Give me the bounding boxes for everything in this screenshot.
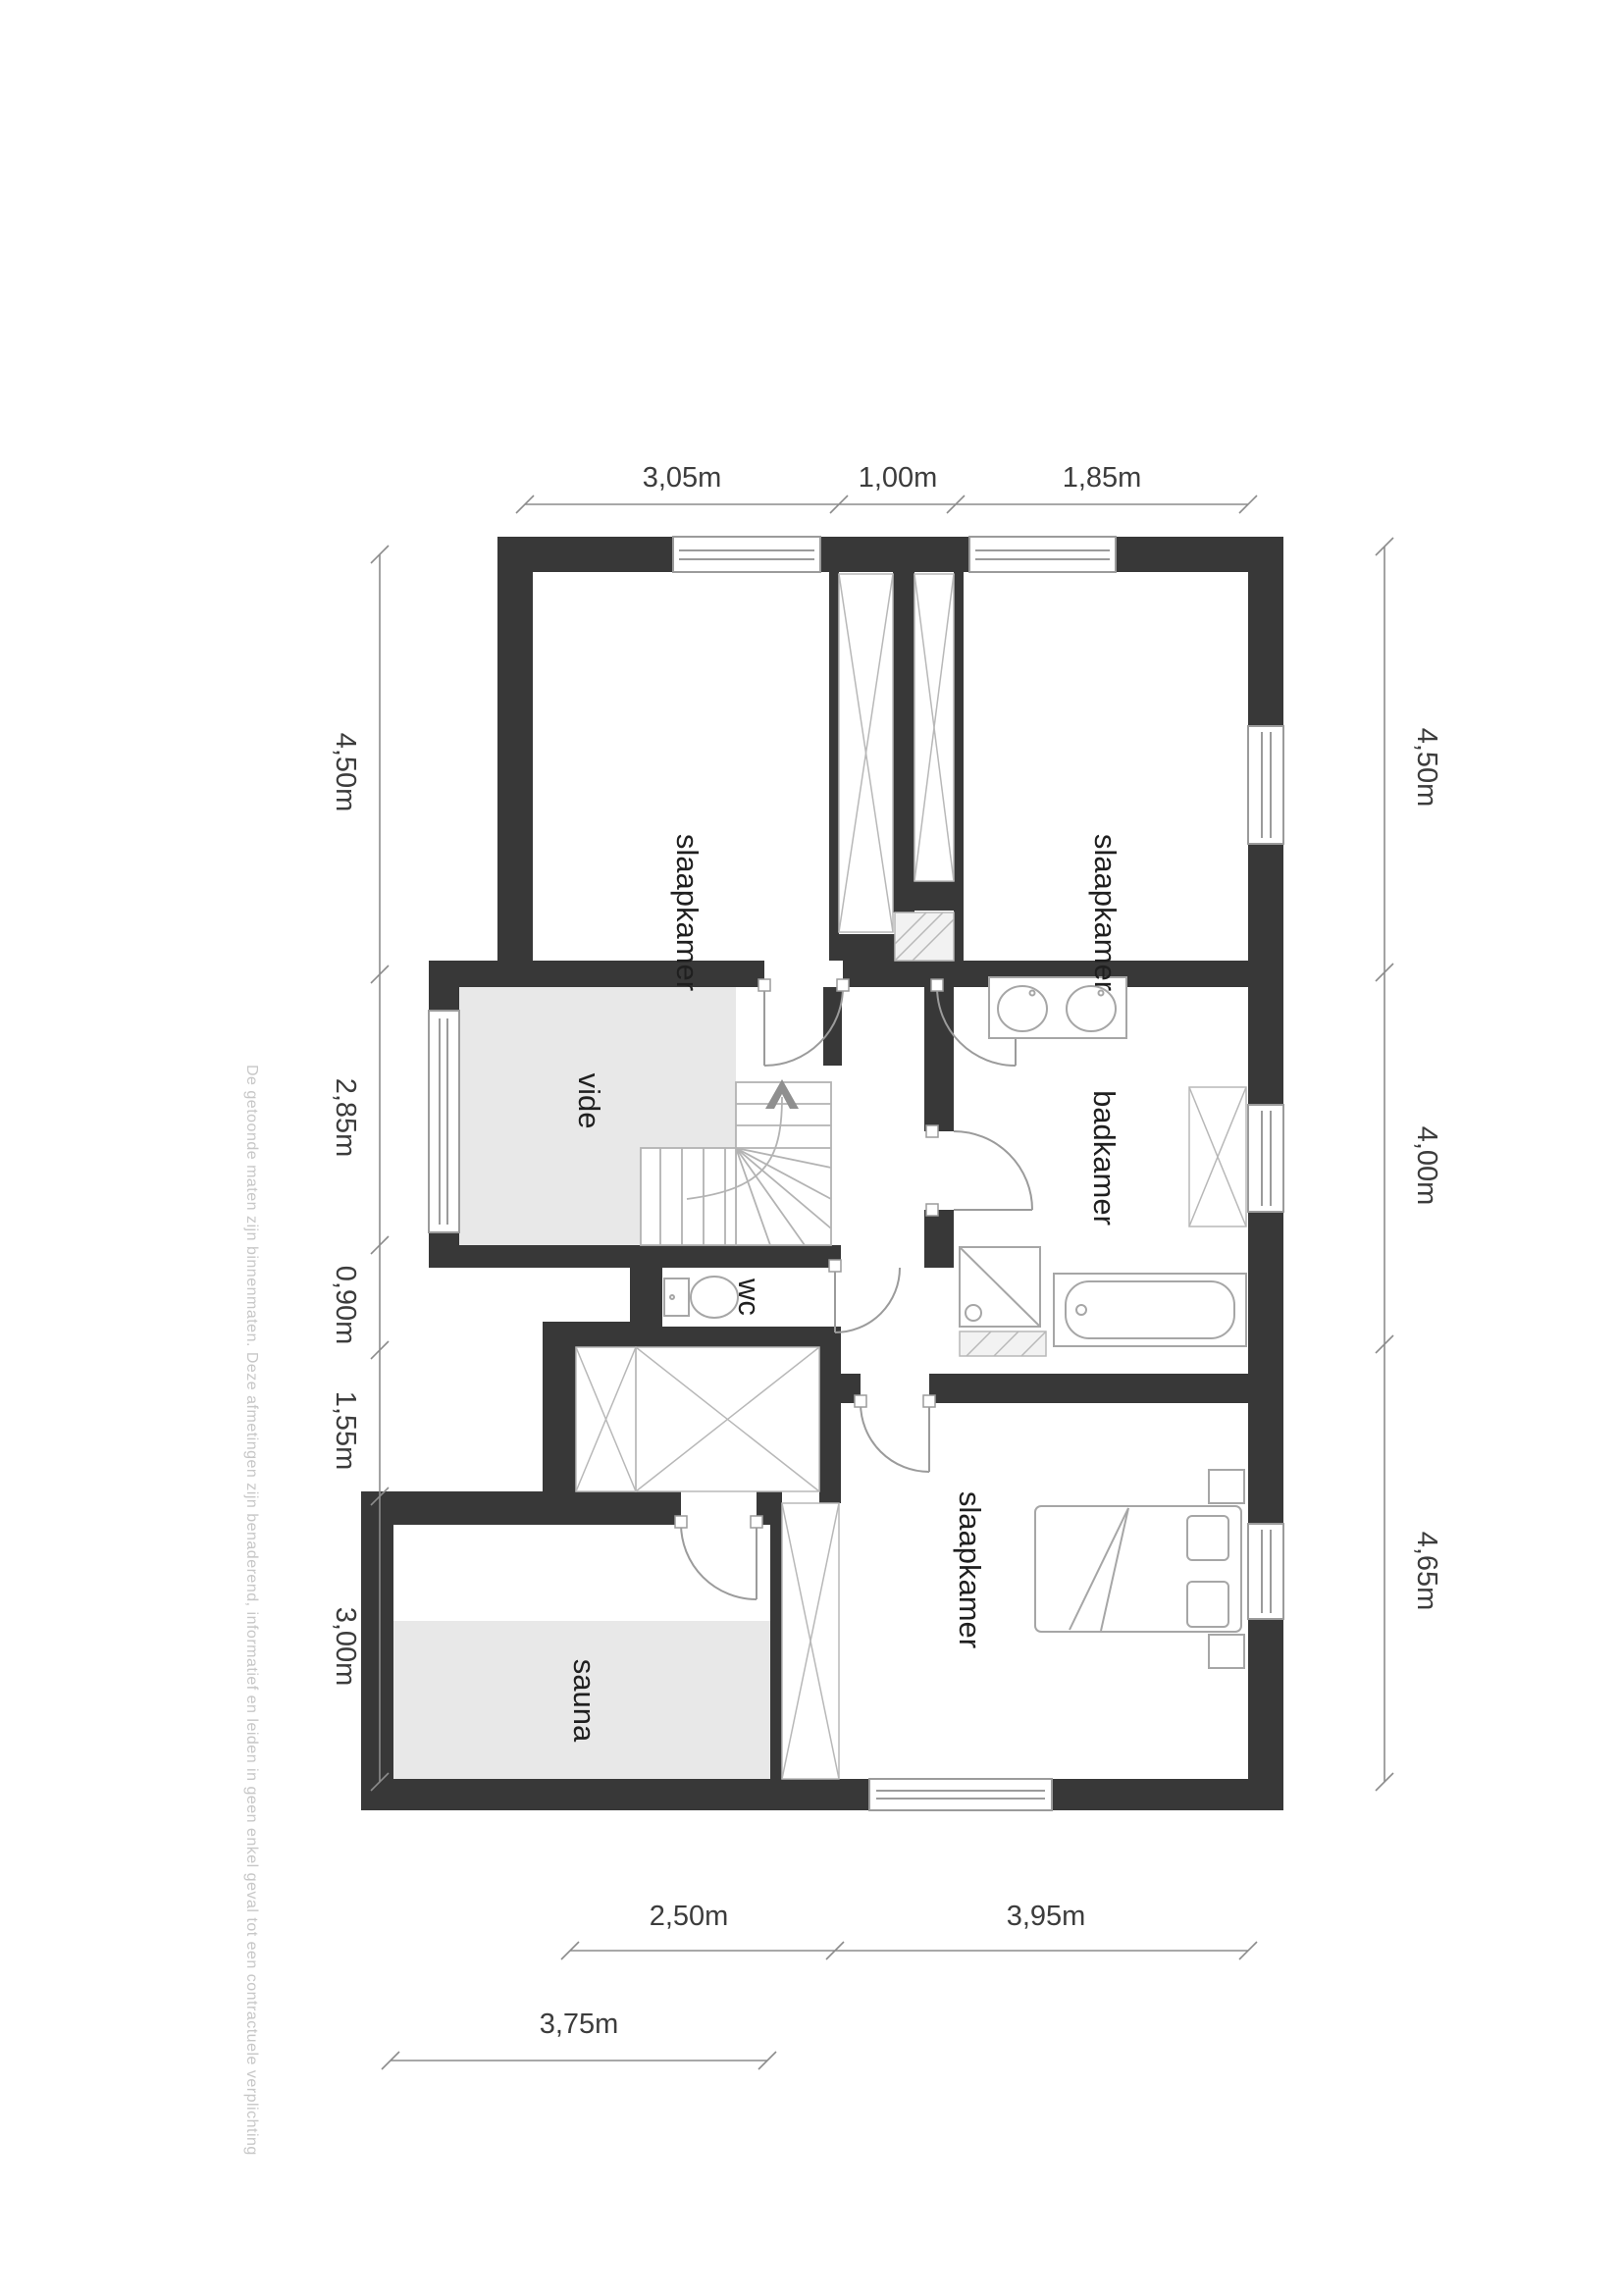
bathtub-icon	[1054, 1274, 1246, 1346]
room-label-slaapkamer-top-left: slaapkamer	[670, 834, 705, 991]
dimension-left: 4,50m 2,85m 0,90m 1,55m 3,00m	[330, 546, 389, 1791]
floor-plan-svg: slaapkamer slaapkamer badkamer vide wc s…	[0, 0, 1619, 2296]
closet-hall-narrow-icon	[576, 1347, 636, 1491]
dim-top-1: 3,05m	[643, 462, 722, 494]
disclaimer-text: De getoonde maten zijn binnenmaten. Deze…	[243, 1065, 260, 2156]
dim-left-5: 3,00m	[330, 1607, 361, 1687]
room-label-slaapkamer-bottom: slaapkamer	[953, 1491, 987, 1648]
closet-hall-wide-icon	[636, 1347, 819, 1491]
dim-left-4: 1,55m	[330, 1391, 361, 1471]
room-label-sauna: sauna	[567, 1659, 601, 1743]
dimension-bottom: 2,50m 3,95m	[561, 1901, 1257, 1959]
closet-sauna-icon	[782, 1503, 839, 1779]
room-label-vide: vide	[572, 1073, 606, 1129]
dim-bottom-2: 3,95m	[1007, 1901, 1086, 1932]
window-top-left-icon	[673, 537, 820, 572]
closet-top-right-icon	[914, 574, 954, 881]
toilet-icon	[664, 1277, 738, 1318]
window-top-right-icon	[969, 537, 1116, 572]
dim-bottom-1: 2,50m	[650, 1901, 729, 1932]
window-vide-icon	[429, 1011, 459, 1232]
window-bottom-bedroom-icon	[1248, 1524, 1283, 1619]
door-sauna-icon	[675, 1516, 762, 1599]
shaft-hatch-icon	[895, 913, 954, 961]
closet-badkamer-icon	[1189, 1087, 1246, 1226]
dim-right-2: 4,00m	[1411, 1126, 1442, 1206]
door-wc-icon	[829, 1260, 900, 1332]
shower-icon	[960, 1247, 1046, 1356]
dim-bottom2-1: 3,75m	[540, 2009, 619, 2040]
window-right-bedroom-icon	[1248, 726, 1283, 844]
dim-left-3: 0,90m	[330, 1266, 361, 1345]
dim-left-2: 2,85m	[330, 1078, 361, 1158]
room-label-wc: wc	[732, 1278, 766, 1316]
dimension-bottom-2: 3,75m	[382, 2009, 776, 2069]
bed-icon	[1035, 1470, 1244, 1668]
room-label-badkamer: badkamer	[1087, 1090, 1122, 1226]
room-label-slaapkamer-top-right: slaapkamer	[1088, 834, 1123, 991]
door-badkamer-icon	[926, 1125, 1032, 1216]
dimension-top: 3,05m 1,00m 1,85m	[516, 462, 1257, 513]
closet-top-left-icon	[839, 574, 893, 932]
dim-left-1: 4,50m	[330, 733, 361, 812]
dim-top-3: 1,85m	[1063, 462, 1142, 494]
dim-top-2: 1,00m	[859, 462, 938, 494]
dim-right-1: 4,50m	[1411, 728, 1442, 808]
dimension-right: 4,50m 4,00m 4,65m	[1376, 538, 1442, 1791]
door-bedroom-bottom-icon	[855, 1395, 935, 1472]
dim-right-3: 4,65m	[1411, 1532, 1442, 1611]
floorplan-page: slaapkamer slaapkamer badkamer vide wc s…	[0, 0, 1619, 2296]
window-bottom-icon	[869, 1779, 1052, 1810]
window-badkamer-icon	[1248, 1105, 1283, 1212]
